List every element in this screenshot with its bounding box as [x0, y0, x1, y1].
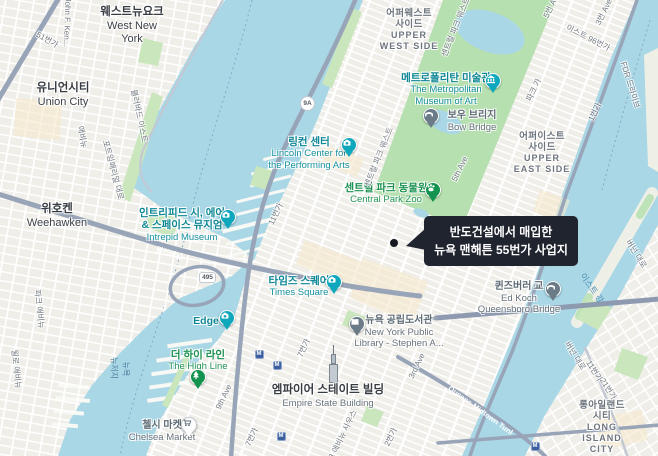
poi-lincoln-center: 링컨 센터Lincoln Center for the Performing A… [268, 136, 349, 171]
district-long-island-city-text: LONG ISLAND CITY [574, 422, 630, 454]
poi-times-square: 타임즈 스퀘어Times Square [269, 275, 330, 299]
route-495-shield: 495 [199, 272, 216, 283]
city-weehawken: 위호켄Weehawken [27, 203, 87, 230]
poi-central-park-zoo: 센트럴 파크 동물원Central Park Zoo [344, 182, 427, 206]
subway-station-icon[interactable]: M [255, 350, 264, 359]
subway-station-icon[interactable]: M [273, 361, 282, 370]
water-new-york-text: 뉴욕 [121, 362, 130, 377]
district-upper-east-side: 어퍼이스트 사이드UPPER EAST SIDE [514, 131, 571, 175]
poi-ny-public-library-text: New York Public Library - Stephen A... [354, 327, 443, 349]
poi-intrepid-museum-text: 인트리피드 시, 에어 & 스페이스 뮤지엄 [139, 207, 225, 232]
poi-met-museum-text: The Metropolitan Museum of Art [401, 84, 491, 106]
poi-queensboro-bridge-text: Ed Koch Queensboro Bridge [478, 293, 560, 315]
bridge-icon [424, 109, 434, 119]
camera-icon [327, 275, 337, 285]
empire-state-building-icon [328, 345, 339, 383]
city-union-city-text: Union City [37, 96, 90, 109]
poi-ny-public-library-text: 뉴욕 공립도서관 [354, 315, 443, 327]
poi-edge-text: Edge [193, 315, 219, 327]
street-jfk-blvd-text: John F. Ken... [61, 0, 72, 47]
poi-met-museum-text: 메트로폴리탄 미술관 [401, 72, 491, 84]
subway-station-icon[interactable]: M [531, 442, 540, 451]
city-weehawken-text: Weehawken [27, 217, 87, 230]
water-new-jersey: 뉴저지 [109, 357, 118, 379]
city-weehawken-text: 위호켄 [27, 203, 87, 217]
intrepid-pin[interactable] [220, 209, 236, 225]
tree-icon [191, 370, 201, 380]
subway-station-icon[interactable]: M [277, 432, 286, 441]
callout-line-1: 반도건설에서 매입한 [450, 223, 553, 241]
times-square-pin[interactable] [326, 274, 342, 290]
street-jfk-blvd: John F. Ken... [61, 0, 72, 47]
book-icon [350, 317, 360, 327]
poi-lincoln-center-text: Lincoln Center for the Performing Arts [268, 148, 349, 170]
poi-met-museum: 메트로폴리탄 미술관The Metropolitan Museum of Art [401, 72, 491, 107]
queensboro-bridge-pin[interactable] [545, 281, 561, 297]
poi-empire-state-building-text: 엠파이어 스테이트 빌딩 [272, 384, 384, 398]
district-long-island-city-text: 롱아일랜드 시티 [574, 400, 630, 422]
poi-times-square-text: 타임즈 스퀘어 [269, 275, 330, 287]
district-upper-east-side-text: 어퍼이스트 사이드 [514, 131, 571, 153]
map-canvas[interactable]: 반도건설에서 매입한 뉴욕 맨해튼 55번가 사업지 웨스트뉴요크West Ne… [0, 0, 658, 456]
camera-icon [342, 138, 352, 148]
site-callout: 반도건설에서 매입한 뉴욕 맨해튼 55번가 사업지 [424, 216, 578, 266]
bridge-icon [546, 282, 556, 292]
site-marker-dot[interactable] [390, 239, 398, 247]
camera-icon [221, 210, 231, 220]
district-long-island-city: 롱아일랜드 시티LONG ISLAND CITY [574, 400, 630, 454]
poi-empire-state-building-text: Empire State Building [272, 398, 384, 409]
city-west-new-york-text: West New York [100, 20, 163, 46]
met-museum-pin[interactable] [485, 73, 501, 89]
paw-icon [426, 183, 436, 193]
city-union-city: 유니언시티Union City [37, 82, 90, 109]
city-union-city-text: 유니언시티 [37, 82, 90, 96]
district-upper-west-side-text: 어퍼웨스트 사이드 [380, 8, 439, 30]
chelsea-market-pin[interactable] [181, 417, 197, 433]
water-new-jersey-text: 뉴저지 [109, 357, 118, 379]
edge-pin[interactable] [219, 310, 235, 326]
museum-icon [486, 74, 496, 84]
district-upper-west-side-text: UPPER WEST SIDE [380, 30, 439, 51]
poi-central-park-zoo-text: Central Park Zoo [344, 194, 427, 205]
poi-lincoln-center-text: 링컨 센터 [268, 136, 349, 148]
poi-high-line-text: 더 하이 라인 [168, 349, 227, 361]
poi-bow-bridge-text: Bow Bridge [448, 122, 497, 133]
poi-ny-public-library: 뉴욕 공립도서관New York Public Library - Stephe… [354, 315, 443, 349]
poi-intrepid-museum: 인트리피드 시, 에어 & 스페이스 뮤지엄Intrepid Museum [139, 207, 225, 243]
central-park-zoo-pin[interactable] [425, 182, 441, 198]
poi-times-square-text: Times Square [269, 287, 330, 298]
lincoln-center-pin[interactable] [341, 137, 357, 153]
poi-empire-state-building: 엠파이어 스테이트 빌딩Empire State Building [272, 384, 384, 409]
callout-line-2: 뉴욕 맨해튼 55번가 사업지 [434, 241, 568, 259]
district-upper-east-side-text: UPPER EAST SIDE [514, 153, 571, 174]
poi-bow-bridge-text: 보우 브리지 [448, 110, 497, 122]
camera-icon [220, 311, 230, 321]
library-pin[interactable] [349, 316, 365, 332]
poi-bow-bridge: 보우 브리지Bow Bridge [448, 110, 497, 133]
poi-intrepid-museum-text: Intrepid Museum [139, 232, 225, 243]
cart-icon [182, 418, 192, 428]
route-9a-shield: 9A [300, 96, 315, 111]
poi-central-park-zoo-text: 센트럴 파크 동물원 [344, 182, 427, 194]
lincoln-tunnel-loop [167, 262, 228, 310]
city-west-new-york-text: 웨스트뉴요크 [100, 6, 163, 20]
water-new-york: 뉴욕 [121, 362, 130, 377]
poi-edge: Edge [193, 315, 219, 327]
high-line-pin[interactable] [190, 369, 206, 385]
city-west-new-york: 웨스트뉴요크West New York [100, 6, 163, 46]
bow-bridge-pin[interactable] [423, 108, 439, 124]
district-upper-west-side: 어퍼웨스트 사이드UPPER WEST SIDE [380, 8, 439, 52]
